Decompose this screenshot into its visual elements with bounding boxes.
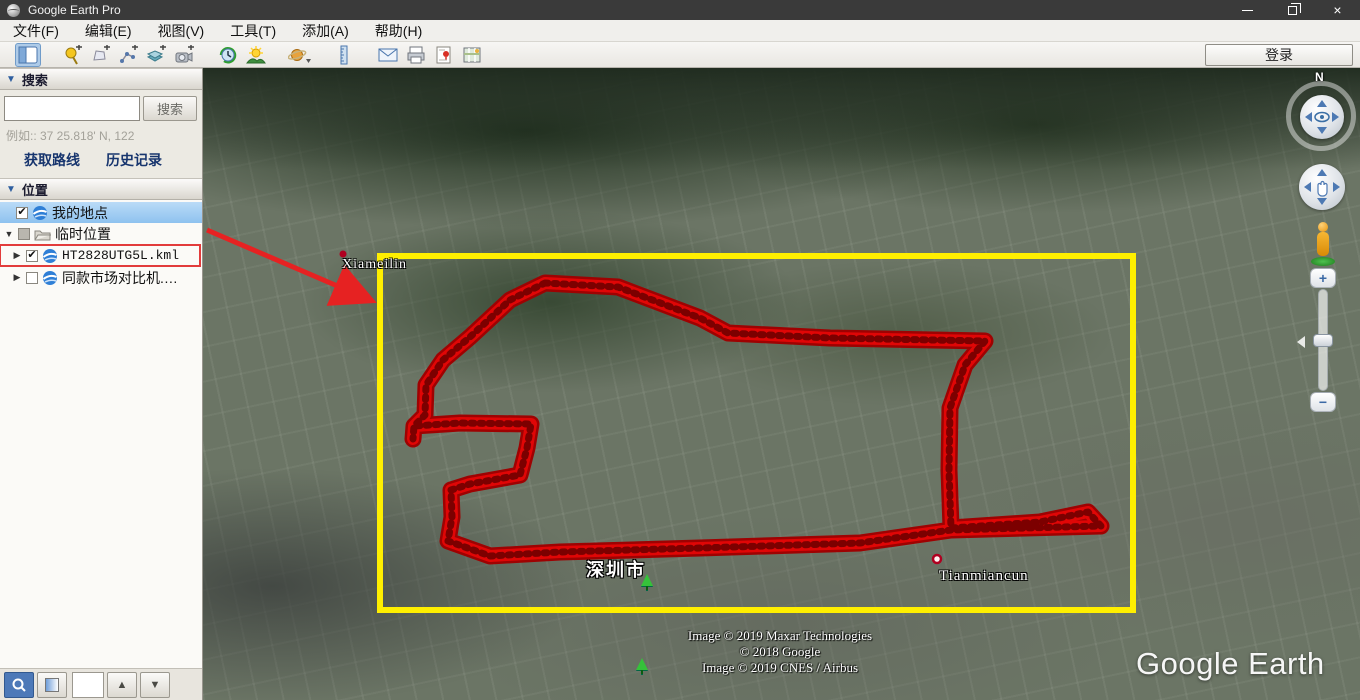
sidebar-toggle-button[interactable] <box>15 43 41 67</box>
tree-item-label: HT2828UTG5L.kml <box>62 248 179 263</box>
search-example-hint: 例如:: 37 25.818' N, 122 <box>0 123 202 144</box>
minimize-icon <box>1242 10 1253 11</box>
places-tree: ✔ 我的地点 ▼ 临时位置 ▶ ✔ HT2828UTG5L.kml ▶ 同款市场… <box>0 200 202 668</box>
expander-down-icon[interactable]: ▼ <box>4 229 14 239</box>
copyright-line: Image © 2019 CNES / Airbus <box>620 660 940 676</box>
look-right-icon[interactable] <box>1332 112 1339 122</box>
add-image-overlay-button[interactable] <box>143 43 169 67</box>
magnifier-icon <box>11 677 27 693</box>
minimize-button[interactable] <box>1225 0 1270 20</box>
hand-icon <box>1318 182 1327 197</box>
email-icon <box>378 45 398 65</box>
tree-item-my-places[interactable]: ✔ 我的地点 <box>0 202 202 223</box>
search-results-button[interactable] <box>4 672 34 698</box>
map-label-shenzhen: 深圳市 <box>586 556 646 582</box>
window-title: Google Earth Pro <box>28 3 121 17</box>
historical-imagery-button[interactable] <box>215 43 241 67</box>
sidebar-toggle-icon <box>18 46 38 64</box>
save-image-button[interactable] <box>431 43 457 67</box>
globe-icon <box>42 270 58 286</box>
menu-file[interactable]: 文件(F) <box>0 20 72 41</box>
restore-button[interactable] <box>1270 0 1315 20</box>
sunlight-button[interactable] <box>243 43 269 67</box>
ruler-icon <box>334 45 354 65</box>
sign-in-button[interactable]: 登录 <box>1205 44 1353 66</box>
blank-box[interactable] <box>72 672 104 698</box>
look-up-icon[interactable] <box>1317 100 1327 107</box>
add-image-overlay-icon <box>146 45 166 65</box>
gps-track[interactable] <box>413 283 1101 556</box>
tree-item-temporary-places[interactable]: ▼ 临时位置 <box>0 223 202 244</box>
email-button[interactable] <box>375 43 401 67</box>
view-in-maps-button[interactable] <box>459 43 485 67</box>
down-arrow-icon: ▼ <box>150 679 161 691</box>
add-placemark-button[interactable] <box>59 43 85 67</box>
place-dot-tianmiancun <box>933 555 941 563</box>
search-button[interactable]: 搜索 <box>143 96 197 121</box>
move-joystick[interactable] <box>1299 164 1345 210</box>
move-left-icon[interactable] <box>1304 182 1311 192</box>
title-bar: Google Earth Pro × <box>0 0 1360 20</box>
print-button[interactable] <box>403 43 429 67</box>
globe-icon <box>42 248 58 264</box>
move-down-button[interactable]: ▼ <box>140 672 170 698</box>
record-tour-button[interactable] <box>171 43 197 67</box>
checkbox-checked[interactable]: ✔ <box>16 207 28 219</box>
map-viewport[interactable]: Xiameilin 深圳市 Tianmiancun Image © 2019 M… <box>203 68 1360 700</box>
tree-item-label: 我的地点 <box>52 203 108 223</box>
collapse-triangle-icon: ▼ <box>6 74 16 85</box>
map-label-tianmiancun: Tianmiancun <box>939 568 1029 585</box>
search-row: 搜索 <box>0 90 202 123</box>
menu-bar: 文件(F) 编辑(E) 视图(V) 工具(T) 添加(A) 帮助(H) <box>0 20 1360 42</box>
move-right-icon[interactable] <box>1333 182 1340 192</box>
add-polygon-icon <box>90 45 110 65</box>
add-polygon-button[interactable] <box>87 43 113 67</box>
globe-square-button[interactable] <box>37 672 67 698</box>
search-panel-header[interactable]: ▼ 搜索 <box>0 68 202 90</box>
restore-icon <box>1288 6 1297 15</box>
app-globe-icon <box>7 4 20 17</box>
toolbar: 登录 <box>0 42 1360 68</box>
move-down-icon[interactable] <box>1317 198 1327 205</box>
close-button[interactable]: × <box>1315 0 1360 20</box>
tree-item-label: 同款市场对比机.… <box>62 268 178 288</box>
search-links: 获取路线 历史记录 <box>0 144 202 178</box>
up-arrow-icon: ▲ <box>117 679 128 691</box>
menu-view[interactable]: 视图(V) <box>145 20 218 41</box>
save-image-icon <box>434 45 454 65</box>
callout-arrow <box>207 230 363 297</box>
sidebar-footer: ▲ ▼ <box>0 668 202 700</box>
pegman-body <box>1317 232 1329 256</box>
zoom-in-button[interactable]: + <box>1310 268 1336 288</box>
search-input[interactable] <box>4 96 140 121</box>
planets-button[interactable] <box>287 43 313 67</box>
search-panel-title: 搜索 <box>22 70 48 89</box>
view-in-maps-icon <box>462 45 482 65</box>
tree-item-kml-highlighted[interactable]: ▶ ✔ HT2828UTG5L.kml <box>0 245 200 266</box>
look-left-icon[interactable] <box>1305 112 1312 122</box>
map-label-xiameilin: Xiameilin <box>342 257 407 273</box>
sunlight-icon <box>246 45 266 65</box>
menu-help[interactable]: 帮助(H) <box>362 20 435 41</box>
menu-add[interactable]: 添加(A) <box>289 20 362 41</box>
copyright-line: Image © 2019 Maxar Technologies <box>620 628 940 644</box>
zoom-out-button[interactable]: − <box>1310 392 1336 412</box>
pegman-head <box>1318 222 1328 232</box>
copyright-line: © 2018 Google <box>620 644 940 660</box>
imagery-copyright: Image © 2019 Maxar Technologies © 2018 G… <box>620 628 940 676</box>
pegman-street-view[interactable] <box>1310 220 1336 266</box>
zoom-slider-handle[interactable] <box>1313 334 1333 347</box>
pegman-base <box>1311 257 1335 266</box>
planets-icon <box>288 45 312 65</box>
expander-right-icon[interactable]: ▶ <box>12 272 22 283</box>
globe-icon <box>32 205 48 221</box>
places-panel-header[interactable]: ▼ 位置 <box>0 178 202 200</box>
nav-collapse-chevron-icon[interactable] <box>1297 336 1305 348</box>
move-up-icon[interactable] <box>1317 169 1327 176</box>
eye-pupil-icon <box>1320 115 1324 119</box>
checkbox-unchecked[interactable] <box>26 272 38 284</box>
globe-square-icon <box>45 678 59 692</box>
look-down-icon[interactable] <box>1317 127 1327 134</box>
add-path-button[interactable] <box>115 43 141 67</box>
add-path-icon <box>118 45 138 65</box>
collapse-triangle-icon: ▼ <box>6 184 16 195</box>
menu-tools[interactable]: 工具(T) <box>217 20 289 41</box>
record-tour-icon <box>174 45 194 65</box>
historical-imagery-icon <box>218 45 238 65</box>
add-placemark-icon <box>62 45 82 65</box>
google-earth-watermark: Google Earth <box>1136 646 1325 682</box>
folder-icon <box>34 227 51 241</box>
tree-item-comparison-device[interactable]: ▶ 同款市场对比机.… <box>0 267 202 288</box>
history-link[interactable]: 历史记录 <box>106 150 162 170</box>
checkbox-partial[interactable] <box>18 228 30 240</box>
checkbox-checked[interactable]: ✔ <box>26 250 38 262</box>
menu-edit[interactable]: 编辑(E) <box>72 20 145 41</box>
print-icon <box>406 45 426 65</box>
map-annotations-overlay <box>203 68 1360 700</box>
expander-right-icon[interactable]: ▶ <box>12 250 22 261</box>
tree-marker-icon <box>641 574 653 586</box>
move-up-button[interactable]: ▲ <box>107 672 137 698</box>
sidebar: ▼ 搜索 搜索 例如:: 37 25.818' N, 122 获取路线 历史记录… <box>0 68 203 700</box>
get-directions-link[interactable]: 获取路线 <box>24 150 80 170</box>
tree-item-label: 临时位置 <box>55 224 111 244</box>
ruler-button[interactable] <box>331 43 357 67</box>
window-controls: × <box>1225 0 1360 20</box>
look-joystick[interactable] <box>1300 95 1344 139</box>
places-panel-title: 位置 <box>22 180 48 199</box>
